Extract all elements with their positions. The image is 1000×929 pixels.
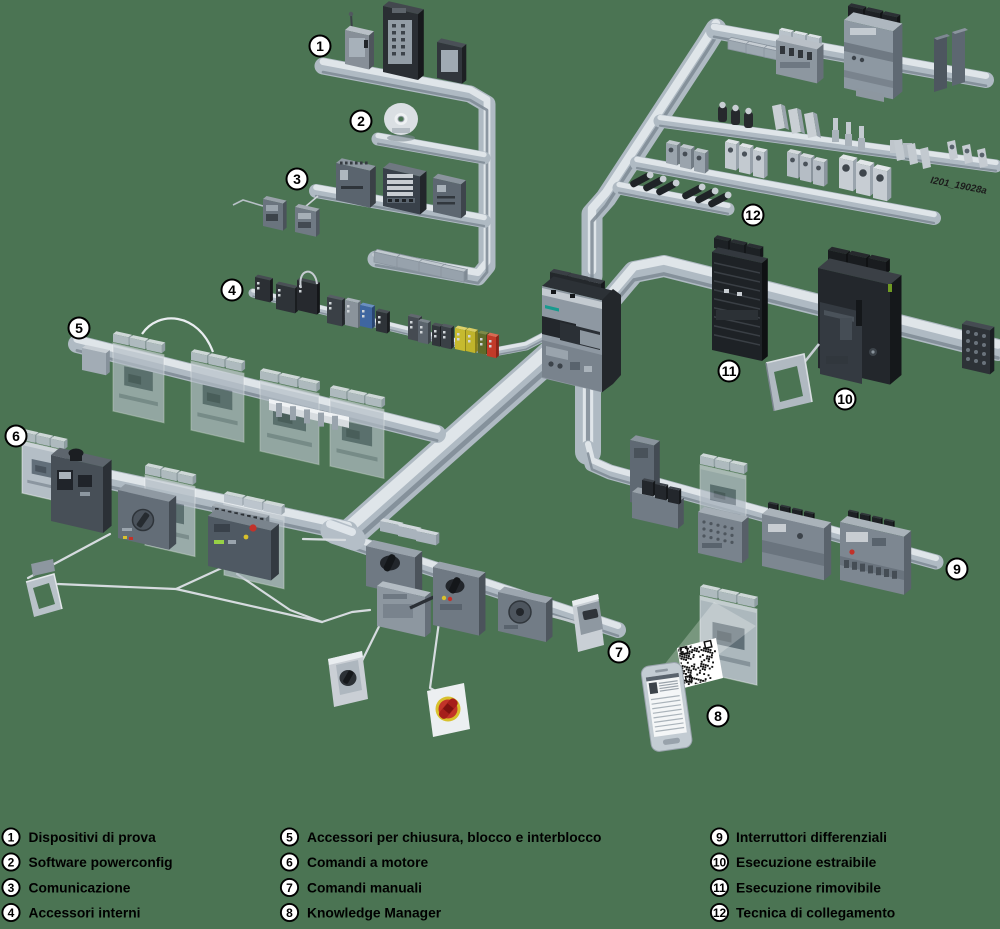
svg-text:11: 11 [722, 363, 737, 379]
svg-text:Knowledge Manager: Knowledge Manager [307, 905, 442, 920]
svg-text:2: 2 [8, 855, 15, 869]
svg-text:7: 7 [286, 881, 293, 895]
svg-text:4: 4 [8, 906, 15, 920]
svg-text:3: 3 [293, 171, 301, 187]
svg-text:1: 1 [8, 830, 15, 844]
svg-text:Esecuzione estraibile: Esecuzione estraibile [736, 855, 877, 870]
svg-text:Comandi manuali: Comandi manuali [307, 880, 422, 895]
svg-text:4: 4 [228, 282, 236, 298]
svg-text:8: 8 [286, 906, 293, 920]
svg-text:Esecuzione rimovibile: Esecuzione rimovibile [736, 880, 881, 895]
svg-text:9: 9 [716, 830, 723, 844]
svg-text:3: 3 [8, 881, 15, 895]
svg-text:5: 5 [286, 830, 293, 844]
svg-text:6: 6 [12, 428, 20, 444]
svg-text:12: 12 [745, 207, 761, 223]
svg-text:11: 11 [713, 881, 726, 895]
svg-text:Tecnica di collegamento: Tecnica di collegamento [736, 905, 895, 920]
svg-text:Comunicazione: Comunicazione [29, 880, 131, 895]
svg-text:2: 2 [357, 113, 365, 129]
svg-text:10: 10 [837, 391, 853, 407]
svg-text:Interruttori differenziali: Interruttori differenziali [736, 830, 887, 845]
svg-text:10: 10 [713, 855, 727, 869]
svg-text:Accessori per chiusura, blocco: Accessori per chiusura, blocco e interbl… [307, 830, 601, 845]
svg-text:Software powerconfig: Software powerconfig [29, 855, 173, 870]
svg-text:6: 6 [286, 855, 293, 869]
svg-text:9: 9 [953, 561, 961, 577]
svg-text:Accessori interni: Accessori interni [29, 905, 141, 920]
svg-text:Dispositivi di prova: Dispositivi di prova [29, 830, 157, 845]
svg-text:Comandi a motore: Comandi a motore [307, 855, 428, 870]
svg-text:7: 7 [615, 644, 623, 660]
svg-text:5: 5 [75, 320, 83, 336]
svg-text:8: 8 [714, 708, 722, 724]
svg-text:1: 1 [316, 38, 324, 54]
svg-text:12: 12 [713, 906, 727, 920]
